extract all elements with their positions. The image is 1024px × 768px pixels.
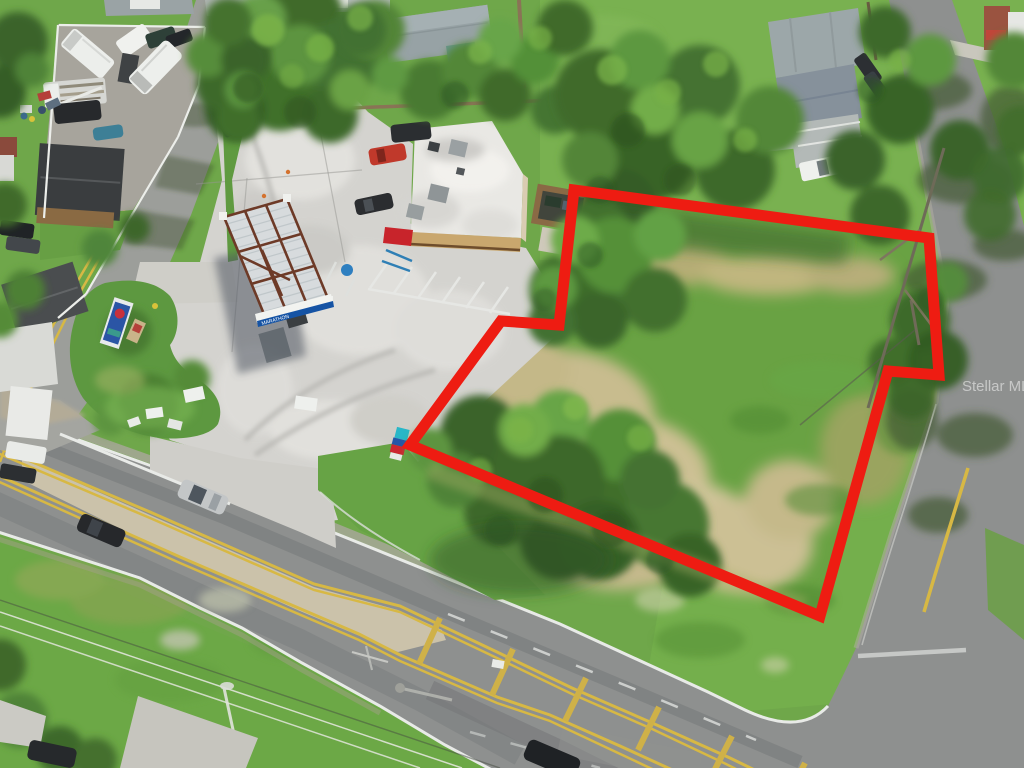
svg-text:Stellar MLS: Stellar MLS [962, 378, 1024, 395]
